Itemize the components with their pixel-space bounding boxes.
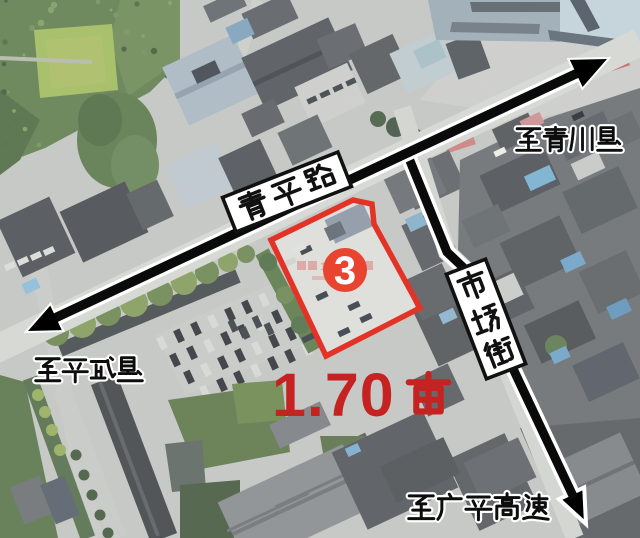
svg-text:1.70: 1.70 <box>272 361 395 429</box>
svg-text:3: 3 <box>334 249 356 293</box>
